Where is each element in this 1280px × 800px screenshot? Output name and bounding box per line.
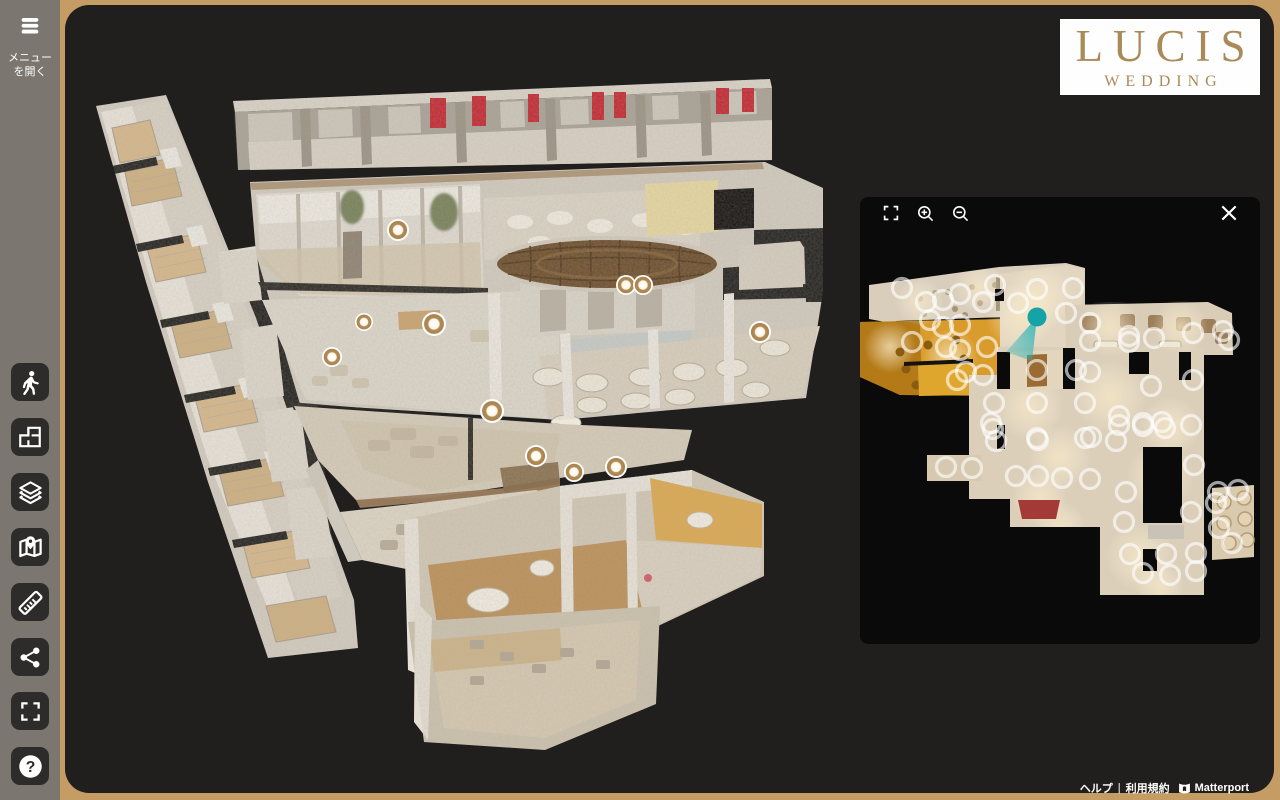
svg-text:?: ? — [25, 759, 35, 776]
